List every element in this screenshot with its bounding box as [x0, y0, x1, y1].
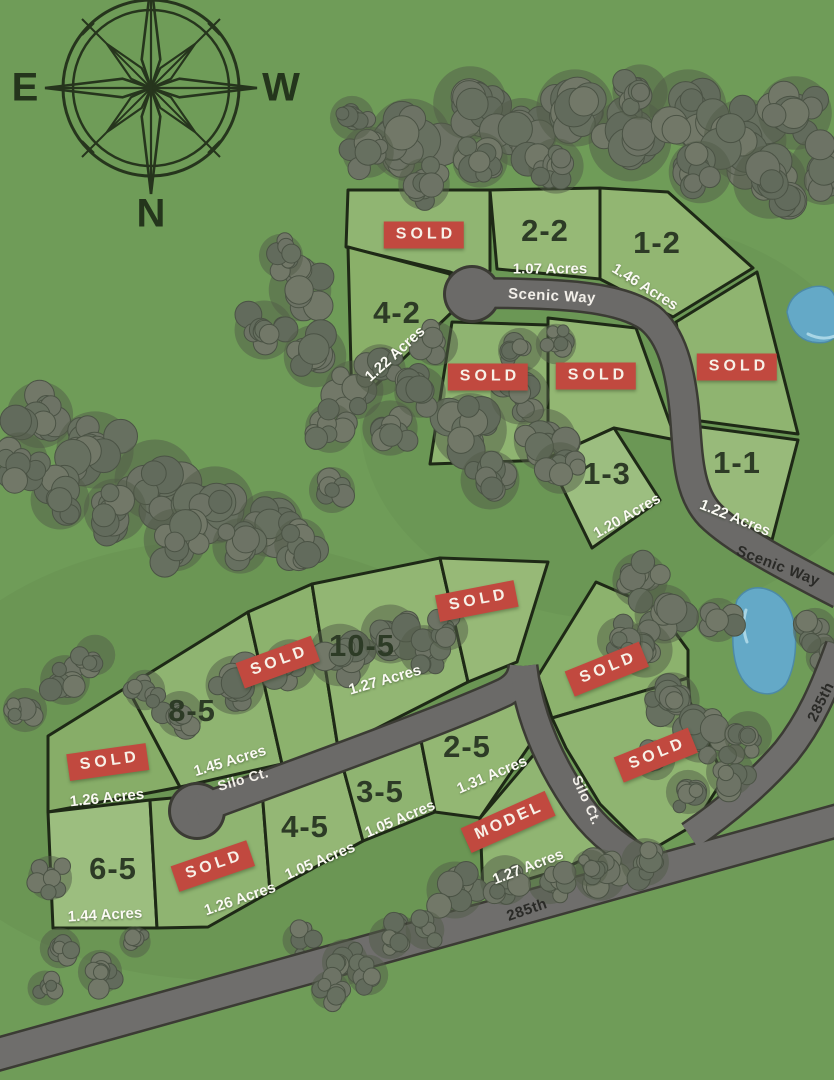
model-badge-l-model: MODEL [461, 791, 556, 853]
road-label-285th: 285th [804, 680, 834, 725]
road-label-silo-ct-: Silo Ct. [569, 773, 605, 827]
lot-number-10-5: 10-5 [329, 628, 395, 664]
sold-badge-l-sold-left: SOLD [66, 743, 149, 781]
acres-label-1-2: 1.46 Acres [609, 260, 681, 314]
lot-number-1-1: 1-1 [713, 445, 761, 481]
acres-label-10-5: 1.27 Acres [347, 662, 423, 699]
road-label-scenic-way: Scenic Way [734, 542, 822, 589]
site-plan-map: E W N SOLD2-21.07 Acres1-21.46 Acres4-21… [0, 0, 834, 1080]
acres-label-l-sold-left: 1.26 Acres [69, 786, 145, 811]
acres-label-4-5: 1.05 Acres [282, 839, 357, 884]
acres-label-6-5: 1.44 Acres [67, 905, 142, 926]
map-labels: E W N SOLD2-21.07 Acres1-21.46 Acres4-21… [0, 0, 834, 1080]
lot-number-4-5: 4-5 [281, 809, 329, 845]
sold-badge-u-sold-1: SOLD [384, 222, 464, 249]
sold-badge-u-sold-4: SOLD [697, 354, 777, 381]
sold-badge-l-sold-r2: SOLD [614, 727, 699, 782]
lot-number-1-3: 1-3 [583, 456, 631, 492]
lot-number-8-5: 8-5 [168, 693, 216, 729]
acres-label-4-2: 1.22 Acres [362, 323, 429, 385]
sold-badge-l-sold-r1: SOLD [565, 641, 650, 696]
lot-number-2-5: 2-5 [443, 729, 491, 765]
lot-number-2-2: 2-2 [521, 213, 569, 249]
lot-number-6-5: 6-5 [89, 851, 137, 887]
compass-north-label: N [137, 192, 166, 237]
acres-label-1-3: 1.20 Acres [590, 490, 663, 542]
lot-number-3-5: 3-5 [356, 774, 404, 810]
road-label-285th: 285th [505, 895, 550, 925]
sold-badge-l-sold-mid: SOLD [236, 636, 321, 689]
compass-west-label: W [262, 66, 300, 111]
acres-label-1-1: 1.22 Acres [697, 496, 772, 540]
sold-badge-u-sold-2: SOLD [448, 364, 528, 391]
acres-label-l-sold-6: 1.26 Acres [202, 879, 278, 919]
acres-label-2-2: 1.07 Acres [513, 261, 588, 278]
sold-badge-l-sold-top: SOLD [435, 580, 519, 622]
lot-number-1-2: 1-2 [633, 225, 681, 261]
sold-badge-l-sold-6: SOLD [171, 840, 256, 892]
road-label-scenic-way: Scenic Way [508, 285, 597, 307]
acres-label-l-model: 1.27 Acres [490, 846, 566, 889]
compass-east-label: E [12, 66, 39, 111]
sold-badge-u-sold-3: SOLD [556, 363, 636, 390]
